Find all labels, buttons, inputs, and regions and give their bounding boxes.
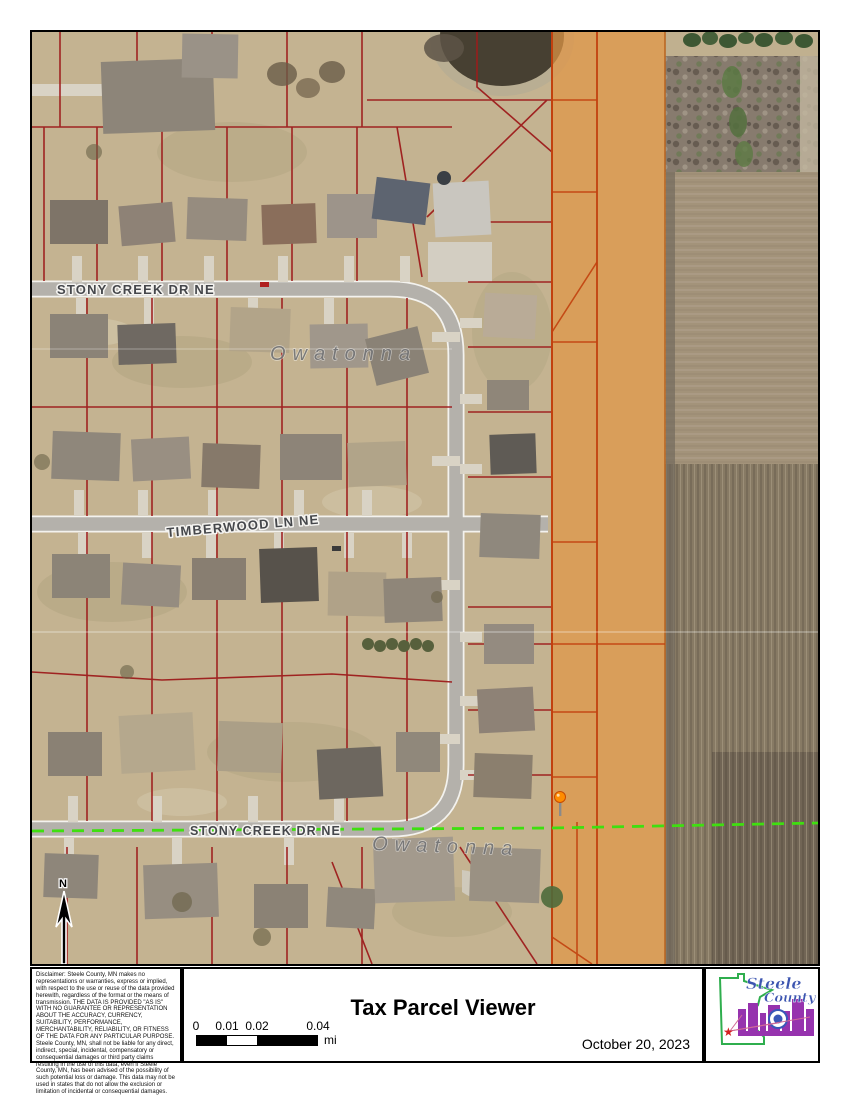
scale-label-0: 0 bbox=[193, 1019, 200, 1033]
county-star-icon: ★ bbox=[723, 1025, 734, 1039]
map-date: October 20, 2023 bbox=[582, 1036, 690, 1052]
scale-label-001: 0.01 bbox=[215, 1019, 238, 1033]
map-canvas[interactable]: STONY CREEK DR NE TIMBERWOOD LN NE STONY… bbox=[30, 30, 820, 966]
county-logo: ★ Steele County bbox=[708, 973, 816, 1059]
scale-label-004: 0.04 bbox=[306, 1019, 329, 1033]
street-label-stony-creek-top: STONY CREEK DR NE bbox=[57, 282, 215, 297]
north-arrow-label: N bbox=[59, 878, 67, 890]
logo-box: ★ Steele County bbox=[704, 967, 820, 1063]
disclaimer-text: Disclaimer: Steele County, MN makes no r… bbox=[32, 969, 180, 1099]
woods bbox=[665, 56, 818, 172]
city-label-owatonna-top: Owatonna bbox=[270, 343, 417, 365]
scale-bar: 0 0.01 0.02 0.04 mi bbox=[194, 1019, 374, 1059]
scale-unit: mi bbox=[324, 1033, 337, 1047]
logo-text-county: County bbox=[764, 991, 816, 1006]
scale-bar-graphic bbox=[196, 1035, 318, 1046]
page-title: Tax Parcel Viewer bbox=[184, 995, 702, 1021]
page: STONY CREEK DR NE TIMBERWOOD LN NE STONY… bbox=[0, 0, 850, 1100]
title-box: Tax Parcel Viewer 0 0.01 0.02 0.04 mi Oc… bbox=[182, 967, 704, 1063]
street-label-stony-creek-bottom: STONY CREEK DR NE bbox=[190, 824, 341, 838]
highlighted-parcels[interactable] bbox=[552, 32, 665, 964]
disclaimer-box: Disclaimer: Steele County, MN makes no r… bbox=[30, 967, 182, 1063]
scale-label-002: 0.02 bbox=[245, 1019, 268, 1033]
